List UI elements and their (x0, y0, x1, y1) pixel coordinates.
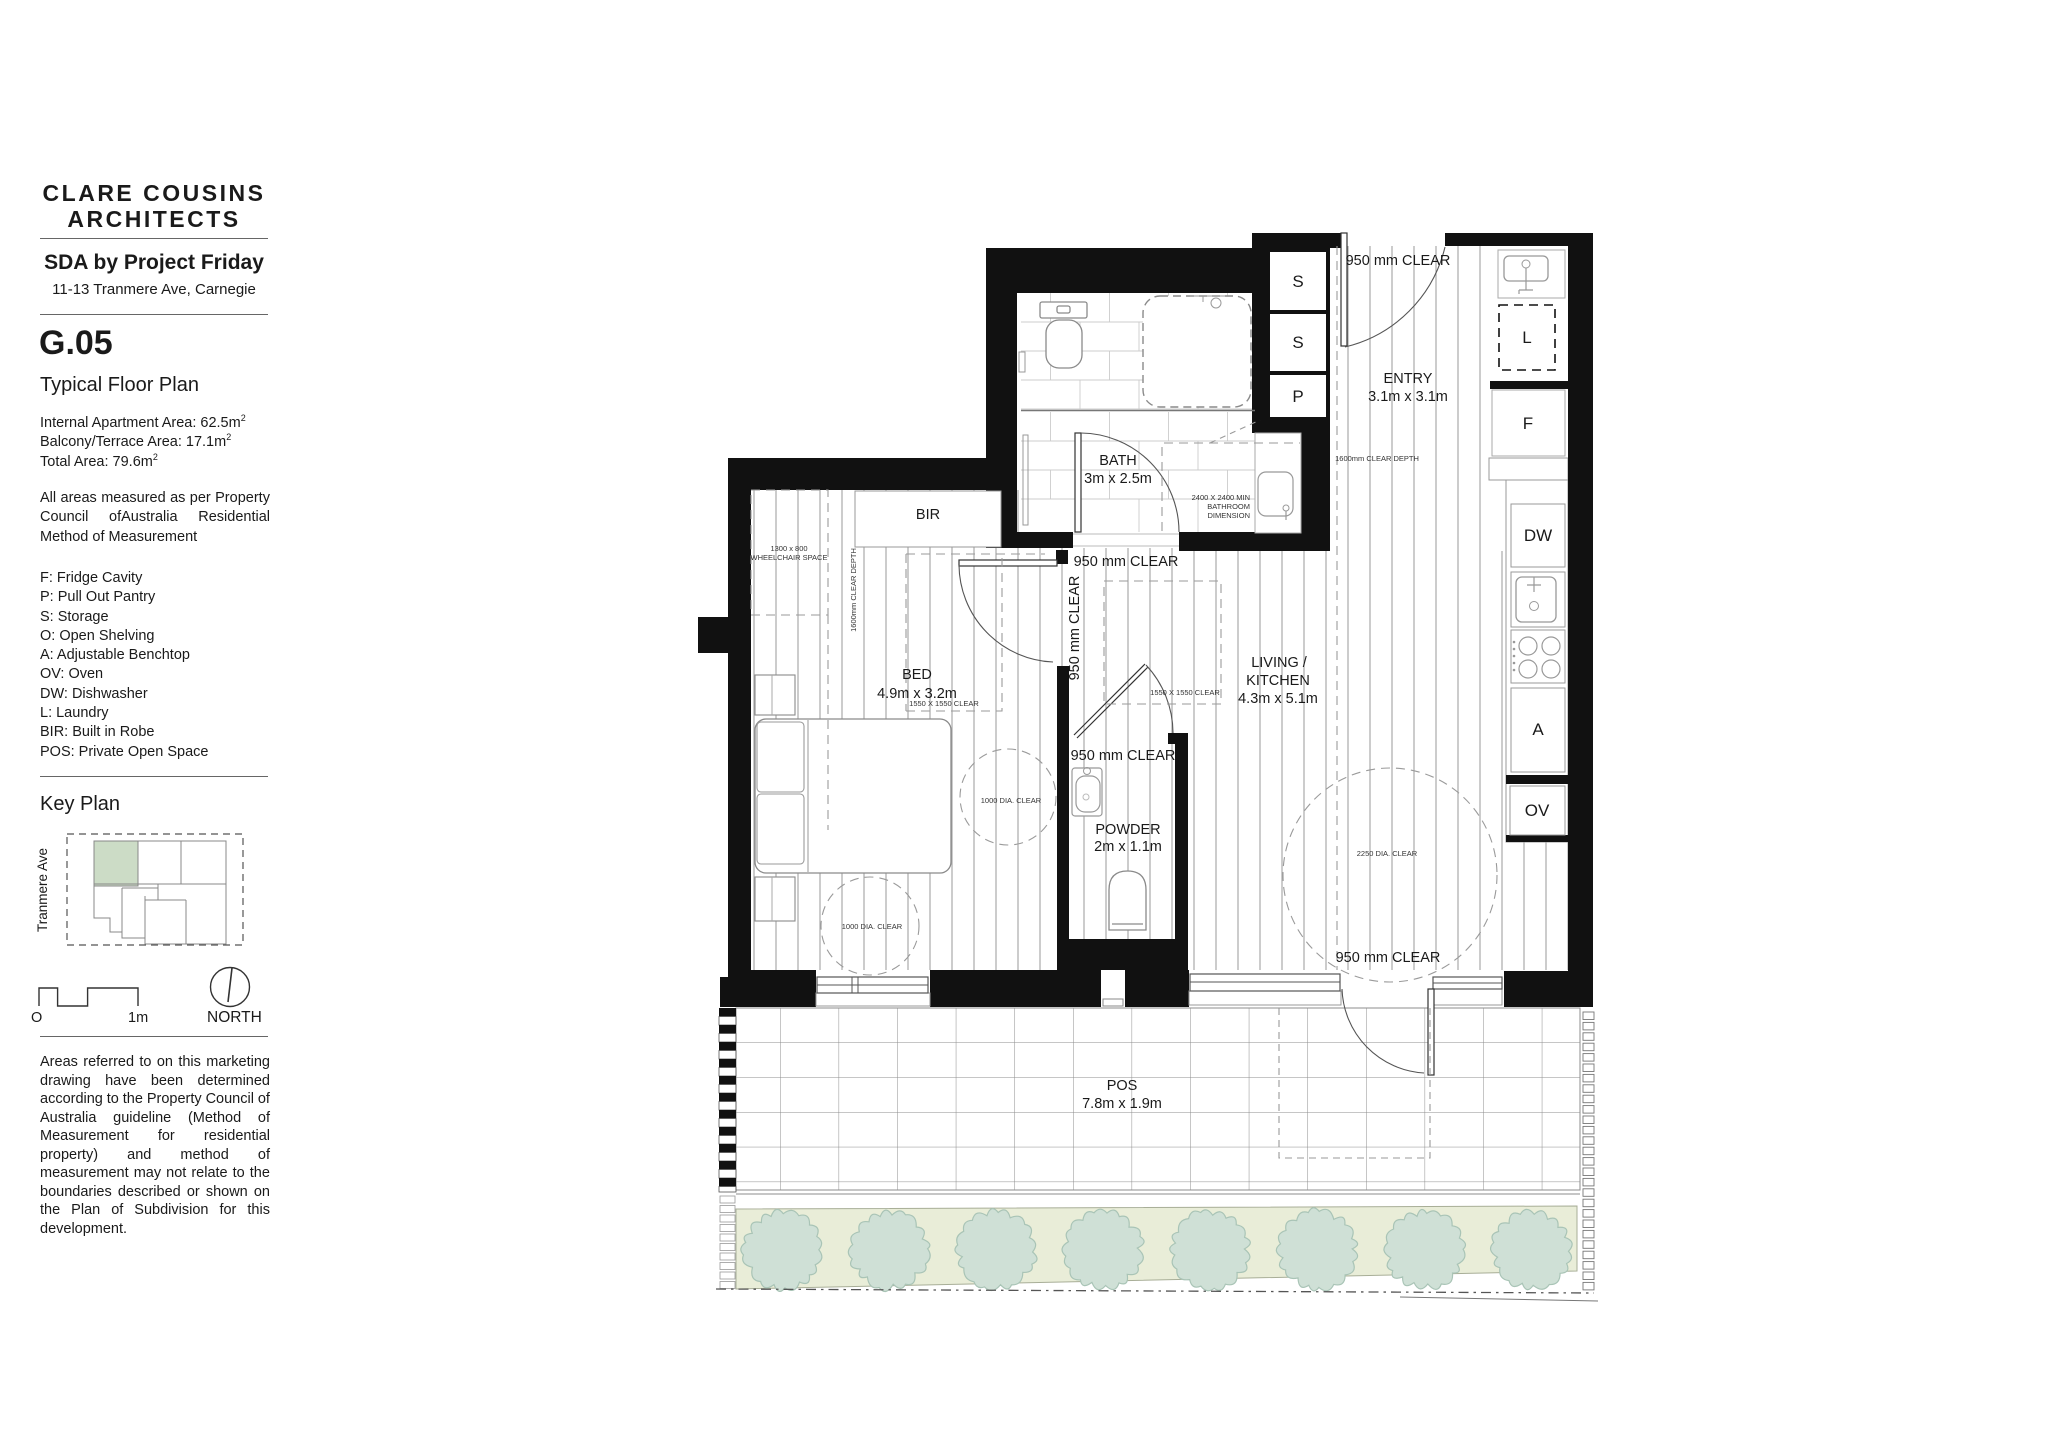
svg-text:KITCHEN: KITCHEN (1246, 673, 1310, 689)
svg-text:ENTRY: ENTRY (1384, 371, 1433, 387)
svg-text:OV: OV (1525, 801, 1550, 820)
svg-text:DIMENSION: DIMENSION (1207, 511, 1250, 520)
svg-text:950 mm CLEAR: 950 mm CLEAR (1071, 748, 1176, 764)
svg-text:1550 X 1550 CLEAR: 1550 X 1550 CLEAR (909, 699, 979, 708)
svg-text:BATH: BATH (1099, 453, 1137, 469)
svg-text:2m x 1.1m: 2m x 1.1m (1094, 839, 1162, 855)
svg-text:950 mm CLEAR: 950 mm CLEAR (1346, 253, 1451, 269)
svg-text:7.8m x 1.9m: 7.8m x 1.9m (1082, 1096, 1162, 1112)
svg-text:950 mm CLEAR: 950 mm CLEAR (1336, 950, 1441, 966)
svg-text:DW: DW (1524, 526, 1552, 545)
svg-text:BATHROOM: BATHROOM (1207, 502, 1250, 511)
svg-text:A: A (1532, 720, 1544, 739)
svg-text:3.1m x 3.1m: 3.1m x 3.1m (1368, 389, 1448, 405)
svg-text:1600mm CLEAR DEPTH: 1600mm CLEAR DEPTH (849, 548, 858, 632)
svg-text:POWDER: POWDER (1095, 822, 1160, 838)
svg-text:950 mm CLEAR: 950 mm CLEAR (1067, 576, 1083, 681)
svg-text:F: F (1523, 414, 1533, 433)
svg-text:P: P (1292, 387, 1303, 406)
svg-text:S: S (1292, 333, 1303, 352)
svg-text:1550 X 1550 CLEAR: 1550 X 1550 CLEAR (1150, 688, 1220, 697)
svg-text:LIVING /: LIVING / (1251, 655, 1308, 671)
svg-text:1300 x 800: 1300 x 800 (770, 544, 807, 553)
svg-text:L: L (1522, 328, 1531, 347)
svg-text:POS: POS (1107, 1078, 1138, 1094)
svg-text:S: S (1292, 272, 1303, 291)
svg-text:WHEELCHAIR SPACE: WHEELCHAIR SPACE (751, 553, 828, 562)
svg-text:4.3m x 5.1m: 4.3m x 5.1m (1238, 691, 1318, 707)
svg-text:2250 DIA. CLEAR: 2250 DIA. CLEAR (1357, 849, 1418, 858)
svg-text:2400 X 2400 MIN: 2400 X 2400 MIN (1192, 493, 1250, 502)
svg-text:1000 DIA. CLEAR: 1000 DIA. CLEAR (842, 922, 903, 931)
svg-text:1600mm CLEAR DEPTH: 1600mm CLEAR DEPTH (1335, 454, 1419, 463)
svg-text:3m x 2.5m: 3m x 2.5m (1084, 471, 1152, 487)
svg-text:950 mm CLEAR: 950 mm CLEAR (1074, 554, 1179, 570)
svg-text:BED: BED (902, 667, 932, 683)
svg-text:BIR: BIR (916, 507, 940, 523)
svg-text:1000 DIA. CLEAR: 1000 DIA. CLEAR (981, 796, 1042, 805)
